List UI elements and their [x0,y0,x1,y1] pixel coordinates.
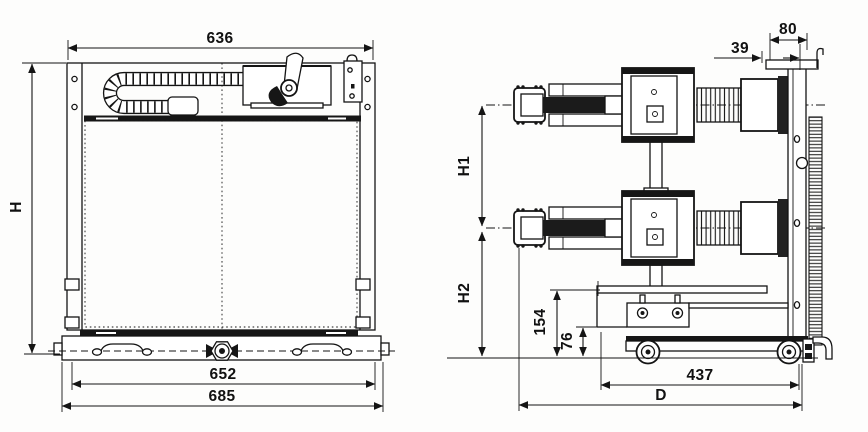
dim-label-652: 652 [209,366,236,383]
guide-tab [65,279,79,290]
flange-hole [365,76,370,81]
support-insulator [741,202,778,254]
dim-label-636: 636 [206,30,233,47]
panel-knob [797,158,808,169]
conduit-end-fitting [168,97,198,115]
flange-hole [72,76,77,81]
guide-tab [356,317,370,328]
guide-tab [356,279,370,290]
support-insulator [741,79,778,131]
dim-label-685: 685 [208,388,235,405]
dim-label-D: D [655,387,667,404]
bellows [697,211,741,245]
drawing-sheet: 636 H 652 685 [0,0,868,432]
flange-hole [72,104,77,109]
mounting-adapter [778,76,788,134]
dim-label-H: H [8,201,25,213]
dim-label-H1: H1 [456,156,473,177]
dim-label-437: 437 [686,367,713,384]
dim-label-80: 80 [779,21,797,38]
mounting-adapter [778,199,788,257]
base-assembly [48,330,395,360]
technical-drawing: 636 H 652 685 [0,0,868,432]
contact-arm-plate [549,84,625,96]
interlock-bracket [344,55,362,102]
contact-arm-plate [549,114,625,126]
rack-rail [809,117,822,345]
threaded-stem [543,97,607,113]
dim-label-39: 39 [731,40,749,57]
dim-label-76: 76 [559,332,576,350]
bellows [697,88,741,122]
dim-label-154: 154 [532,308,549,335]
guide-tab [65,317,79,328]
top-bracket [766,60,818,69]
bottom-seal-strip [80,330,358,336]
dim-label-H2: H2 [456,283,473,304]
flange-hole [365,104,370,109]
